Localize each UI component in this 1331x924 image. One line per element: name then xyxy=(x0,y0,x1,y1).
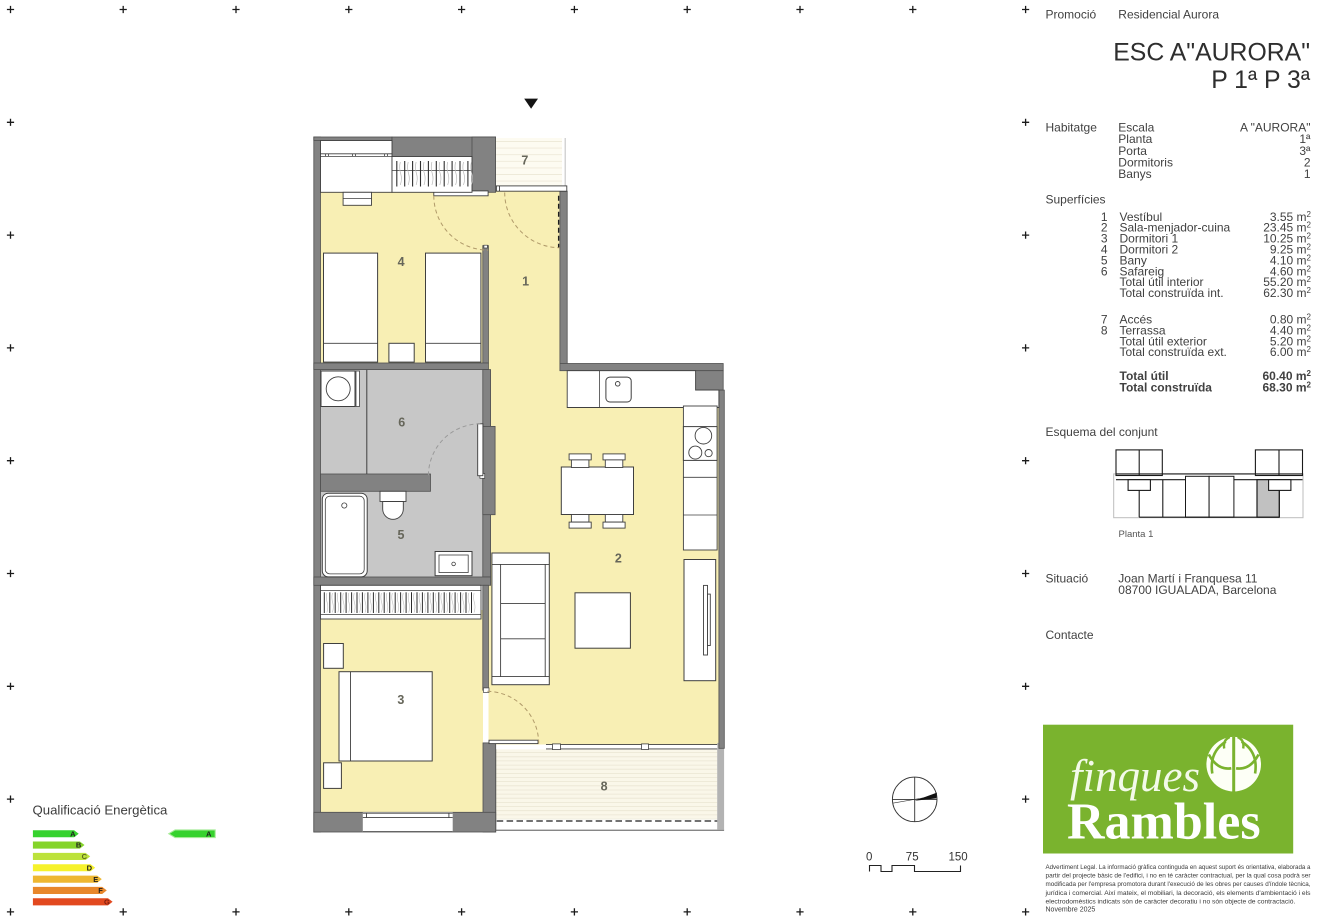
svg-text:Promoció: Promoció xyxy=(1046,8,1097,22)
svg-text:8: 8 xyxy=(601,779,608,793)
svg-text:5: 5 xyxy=(398,528,405,542)
svg-text:modificada per l'empresa promo: modificada per l'empresa promotora duran… xyxy=(1046,881,1311,888)
svg-text:D: D xyxy=(87,863,93,872)
svg-text:jurídica i comercial. Així mat: jurídica i comercial. Així mateix, el mo… xyxy=(1044,890,1311,897)
svg-text:68.30 m2: 68.30 m2 xyxy=(1263,381,1312,395)
svg-text:F: F xyxy=(98,886,103,895)
svg-text:ESC A"AURORA": ESC A"AURORA" xyxy=(1113,40,1310,67)
svg-text:P 1ª P 3ª: P 1ª P 3ª xyxy=(1211,67,1311,94)
svg-text:partir del projecte bàsic de l: partir del projecte bàsic de l'edifici, … xyxy=(1046,873,1312,880)
svg-text:Total construïda ext.: Total construïda ext. xyxy=(1120,345,1227,359)
svg-text:2: 2 xyxy=(615,552,622,566)
svg-text:08700 IGUALADA, Barcelona: 08700 IGUALADA, Barcelona xyxy=(1118,583,1276,597)
svg-text:Rambles: Rambles xyxy=(1067,794,1261,851)
svg-text:3: 3 xyxy=(397,693,404,707)
svg-text:Banys: Banys xyxy=(1118,167,1151,181)
svg-text:Novembre 2025: Novembre 2025 xyxy=(1046,907,1096,914)
svg-text:G: G xyxy=(104,898,110,907)
svg-text:Contacte: Contacte xyxy=(1046,628,1094,642)
svg-text:Planta 1: Planta 1 xyxy=(1119,529,1154,540)
svg-text:Total construïda: Total construïda xyxy=(1120,381,1213,395)
svg-text:Qualificació Energètica: Qualificació Energètica xyxy=(33,803,169,818)
svg-text:6: 6 xyxy=(1101,264,1108,278)
svg-text:4: 4 xyxy=(398,255,405,269)
svg-text:Esquema del conjunt: Esquema del conjunt xyxy=(1046,425,1159,439)
svg-text:1: 1 xyxy=(522,275,529,289)
svg-text:Residencial Aurora: Residencial Aurora xyxy=(1118,8,1219,22)
svg-text:0: 0 xyxy=(866,852,872,864)
svg-text:B: B xyxy=(76,841,82,850)
svg-text:electrodomèstics indicats són: electrodomèstics indicats són de caràcte… xyxy=(1046,898,1296,905)
svg-text:Total construïda int.: Total construïda int. xyxy=(1120,286,1224,300)
svg-text:Habitatge: Habitatge xyxy=(1046,121,1098,135)
svg-text:C: C xyxy=(82,852,88,861)
svg-text:150: 150 xyxy=(949,852,968,864)
svg-text:Situació: Situació xyxy=(1046,571,1089,585)
svg-text:6: 6 xyxy=(398,415,405,429)
svg-text:A: A xyxy=(70,829,76,838)
svg-text:7: 7 xyxy=(521,153,528,167)
svg-text:E: E xyxy=(93,875,98,884)
svg-text:Superfícies: Superfícies xyxy=(1046,193,1106,207)
svg-text:75: 75 xyxy=(906,852,919,864)
svg-text:6.00 m2: 6.00 m2 xyxy=(1270,345,1312,359)
svg-text:1: 1 xyxy=(1304,167,1311,181)
svg-text:Advertiment Legal. La informac: Advertiment Legal. La informació gràfica… xyxy=(1046,864,1311,871)
svg-text:A: A xyxy=(206,830,212,839)
svg-text:8: 8 xyxy=(1101,323,1108,337)
svg-text:62.30 m2: 62.30 m2 xyxy=(1263,286,1311,300)
